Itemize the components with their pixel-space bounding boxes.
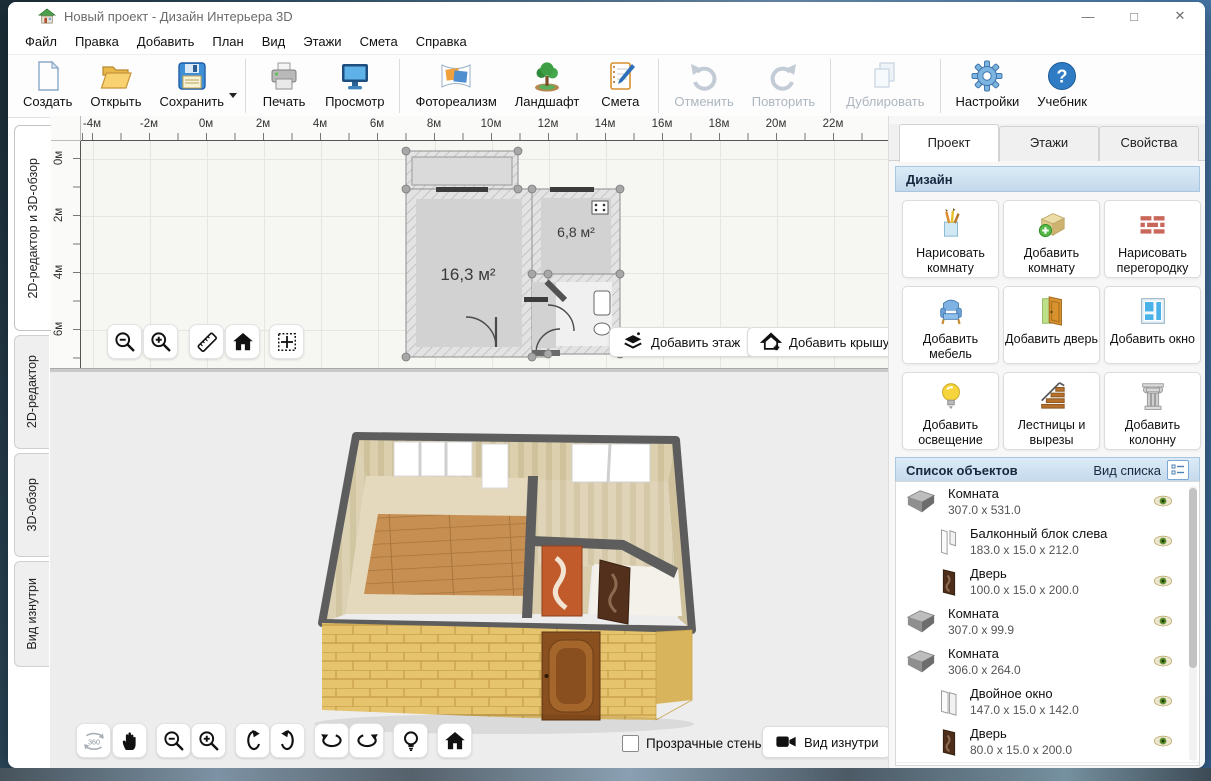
add-furniture-button[interactable]: Добавить мебель: [902, 286, 999, 364]
title-bar: Новый проект - Дизайн Интерьера 3D — □ ✕: [8, 2, 1205, 30]
rotate-360-button[interactable]: 360: [76, 723, 111, 758]
object-list: Комната 307.0 x 531.0 Балконный блок сле…: [895, 481, 1200, 766]
landscape-button[interactable]: Ландшафт: [506, 55, 589, 117]
save-project-button[interactable]: Сохранить: [150, 55, 233, 117]
toolbar-separator: [940, 59, 941, 113]
rotate-right-button[interactable]: [349, 723, 384, 758]
add-roof-button[interactable]: Добавить крышу: [747, 327, 902, 357]
app-logo-icon: [38, 8, 56, 24]
add-column-button[interactable]: Добавить колонну: [1104, 372, 1201, 450]
add-floor-button[interactable]: Добавить этаж: [609, 327, 753, 357]
room-box-plus-icon: [1035, 208, 1069, 242]
grid-toggle-button[interactable]: [269, 324, 304, 359]
list-view-button[interactable]: [1167, 460, 1189, 480]
toolbar-separator: [830, 59, 831, 113]
house-3d-render[interactable]: [294, 418, 734, 738]
new-document-icon: [32, 60, 64, 92]
viewer-3d-canvas[interactable]: 360 Прозрачные стены: [50, 372, 888, 768]
ruler-icon: [195, 330, 219, 354]
door-dark-icon: [934, 727, 964, 757]
visibility-eye-icon[interactable]: [1153, 694, 1173, 708]
tab-properties[interactable]: Свойства: [1099, 126, 1199, 161]
lightbulb-yellow-icon: [934, 380, 968, 414]
menu-plan[interactable]: План: [203, 31, 252, 53]
brick-wall-icon: [1136, 208, 1170, 242]
camera-icon: [775, 731, 797, 753]
visibility-eye-icon[interactable]: [1153, 654, 1173, 668]
home-icon: [231, 330, 255, 354]
editor-2d-canvas[interactable]: -4м -2м 0м 2м 4м 6м 8м 10м 12м 14м 16м 1…: [50, 116, 888, 368]
add-lighting-button[interactable]: Добавить освещение: [902, 372, 999, 450]
rotate-down-button[interactable]: [270, 723, 305, 758]
scrollbar-thumb[interactable]: [1189, 488, 1197, 668]
list-view-label: Вид списка: [1093, 463, 1161, 478]
armchair-icon: [934, 294, 968, 328]
view-mode-tabs: 2D-редактор и 3D-обзор 2D-редактор 3D-об…: [14, 116, 50, 768]
minimize-button[interactable]: —: [1065, 2, 1111, 30]
estimate-notepad-icon: [604, 60, 636, 92]
svg-text:360: 360: [88, 738, 100, 746]
printer-icon: [268, 60, 300, 92]
save-dropdown-arrow[interactable]: [229, 93, 237, 98]
transparent-walls-label: Прозрачные стены: [646, 736, 764, 751]
toolbar-separator: [245, 59, 246, 113]
home-view-button-3d[interactable]: [437, 723, 472, 758]
zoom-out-icon: [113, 330, 137, 354]
add-door-button[interactable]: Добавить дверь: [1003, 286, 1100, 364]
preview-button[interactable]: Просмотр: [316, 55, 393, 117]
stairs-icon: [1035, 380, 1069, 414]
pan-button[interactable]: [112, 723, 147, 758]
svg-text:?: ?: [1057, 67, 1068, 87]
room-icon: [906, 487, 936, 517]
zoom-in-button-2d[interactable]: [143, 324, 178, 359]
inside-view-button[interactable]: Вид изнутри: [762, 726, 891, 758]
menu-help[interactable]: Справка: [407, 31, 476, 53]
open-folder-icon: [100, 60, 132, 92]
zoom-out-button-3d[interactable]: [156, 723, 191, 758]
room-area-small: 6,8 м²: [557, 224, 595, 240]
menu-edit[interactable]: Правка: [66, 31, 128, 53]
desktop-background-strip: [0, 768, 1211, 781]
menu-bar: Файл Правка Добавить План Вид Этажи Смет…: [16, 30, 1205, 54]
maximize-button[interactable]: □: [1111, 2, 1157, 30]
hand-icon: [118, 729, 142, 753]
transparent-walls-checkbox[interactable]: [622, 735, 639, 752]
zoom-in-icon: [149, 330, 173, 354]
balcony-block-icon: [934, 527, 964, 557]
add-window-button[interactable]: Добавить окно: [1104, 286, 1201, 364]
tab-project[interactable]: Проект: [899, 124, 999, 162]
object-row-room-2[interactable]: Комната 307.0 x 99.9: [896, 602, 1199, 643]
floor-plan[interactable]: 16,3 м² 6,8 м²: [396, 145, 634, 367]
save-floppy-icon: [176, 60, 208, 92]
room-area-large: 16,3 м²: [440, 265, 495, 284]
stairs-cutouts-button[interactable]: Лестницы и вырезы: [1003, 372, 1100, 450]
tab-3d-view[interactable]: 3D-обзор: [14, 453, 49, 557]
window-icon: [1136, 294, 1170, 328]
tab-floors[interactable]: Этажи: [999, 126, 1099, 161]
lightbulb-icon: [399, 729, 423, 753]
photorealism-button[interactable]: Фотореализм: [406, 55, 505, 117]
close-button[interactable]: ✕: [1157, 2, 1203, 30]
main-toolbar: Создать Открыть Сохранить Печать Просмот…: [8, 54, 1205, 118]
add-roof-icon: [760, 331, 782, 353]
question-icon: ?: [1046, 60, 1078, 92]
monitor-icon: [339, 60, 371, 92]
object-row-balcony-block[interactable]: Балконный блок слева 183.0 x 15.0 x 212.…: [896, 522, 1199, 563]
visibility-eye-icon[interactable]: [1153, 534, 1173, 548]
menu-file[interactable]: Файл: [16, 31, 66, 53]
room-icon: [906, 647, 936, 677]
object-list-header: Список объектов Вид списка: [895, 457, 1200, 483]
visibility-eye-icon[interactable]: [1153, 574, 1173, 588]
menu-add[interactable]: Добавить: [128, 31, 203, 53]
toolbar-separator: [658, 59, 659, 113]
tab-2d-and-3d[interactable]: 2D-редактор и 3D-обзор: [14, 125, 51, 331]
menu-floors[interactable]: Этажи: [294, 31, 350, 53]
undo-button[interactable]: Отменить: [665, 55, 742, 117]
object-row-door-1[interactable]: Дверь 100.0 x 15.0 x 200.0: [896, 562, 1199, 603]
rotate-right-icon: [355, 729, 379, 753]
double-window-icon: [934, 687, 964, 717]
zoom-out-icon: [162, 729, 186, 753]
tree-icon: [531, 60, 563, 92]
transparent-walls-option[interactable]: Прозрачные стены: [622, 735, 764, 752]
pencil-cup-icon: [934, 208, 968, 242]
ruler-corner: [50, 116, 81, 141]
right-panel-tabs: Проект Этажи Свойства: [889, 124, 1205, 161]
visibility-eye-icon[interactable]: [1153, 614, 1173, 628]
door-dark-icon: [934, 567, 964, 597]
undo-icon: [688, 60, 720, 92]
object-row-door-2[interactable]: Дверь 80.0 x 15.0 x 200.0: [896, 722, 1199, 763]
home-view-button-2d[interactable]: [225, 324, 260, 359]
object-list-scrollbar[interactable]: [1189, 486, 1197, 761]
open-project-button[interactable]: Открыть: [81, 55, 150, 117]
measure-button[interactable]: [189, 324, 224, 359]
add-room-button[interactable]: Добавить комнату: [1003, 200, 1100, 278]
lighting-button[interactable]: [393, 723, 428, 758]
visibility-eye-icon[interactable]: [1153, 494, 1173, 508]
object-row-room-1[interactable]: Комната 307.0 x 531.0: [896, 482, 1199, 523]
photorealism-icon: [440, 60, 472, 92]
menu-estimate[interactable]: Смета: [351, 31, 407, 53]
rotate-up-button[interactable]: [235, 723, 270, 758]
visibility-eye-icon[interactable]: [1153, 734, 1173, 748]
print-button[interactable]: Печать: [252, 55, 316, 117]
rotate-360-icon: 360: [82, 729, 106, 753]
list-view-icon: [1171, 464, 1185, 476]
toolbar-separator: [399, 59, 400, 113]
rotate-left-button[interactable]: [314, 723, 349, 758]
room-icon: [906, 607, 936, 637]
object-row-room-3[interactable]: Комната 306.0 x 264.0: [896, 642, 1199, 683]
horizontal-ruler: -4м -2м 0м 2м 4м 6м 8м 10м 12м 14м 16м 1…: [80, 116, 888, 141]
duplicate-button[interactable]: Дублировать: [837, 55, 933, 117]
object-row-double-window[interactable]: Двойное окно 147.0 x 15.0 x 142.0: [896, 682, 1199, 723]
right-panel: Проект Этажи Свойства Дизайн Нарисовать …: [888, 116, 1205, 768]
grid-icon: [275, 330, 299, 354]
tab-2d-editor[interactable]: 2D-редактор: [14, 335, 49, 449]
new-project-button[interactable]: Создать: [14, 55, 81, 117]
zoom-out-button-2d[interactable]: [107, 324, 142, 359]
window-title: Новый проект - Дизайн Интерьера 3D: [64, 9, 293, 24]
estimate-button[interactable]: Смета: [588, 55, 652, 117]
gear-icon: [971, 60, 1003, 92]
zoom-in-icon: [197, 729, 221, 753]
home-icon: [443, 729, 467, 753]
draw-room-button[interactable]: Нарисовать комнату: [902, 200, 999, 278]
tutorial-button[interactable]: ? Учебник: [1028, 55, 1096, 117]
column-icon: [1136, 380, 1170, 414]
rotate-left-icon: [320, 729, 344, 753]
draw-partition-button[interactable]: Нарисовать перегородку: [1104, 200, 1201, 278]
redo-icon: [767, 60, 799, 92]
settings-button[interactable]: Настройки: [947, 55, 1029, 117]
add-floor-icon: [622, 331, 644, 353]
app-window: Новый проект - Дизайн Интерьера 3D — □ ✕…: [8, 2, 1205, 768]
tab-inside-view[interactable]: Вид изнутри: [14, 561, 49, 667]
door-icon: [1035, 294, 1069, 328]
vertical-ruler: 0м 2м 4м 6м: [50, 140, 81, 368]
menu-view[interactable]: Вид: [253, 31, 295, 53]
rotate-down-icon: [276, 729, 300, 753]
zoom-in-button-3d[interactable]: [191, 723, 226, 758]
duplicate-icon: [869, 60, 901, 92]
rotate-up-icon: [241, 729, 265, 753]
plan-grid[interactable]: 16,3 м² 6,8 м² Добавить этаж: [81, 141, 888, 368]
design-section-header: Дизайн: [895, 166, 1200, 192]
redo-button[interactable]: Повторить: [743, 55, 824, 117]
